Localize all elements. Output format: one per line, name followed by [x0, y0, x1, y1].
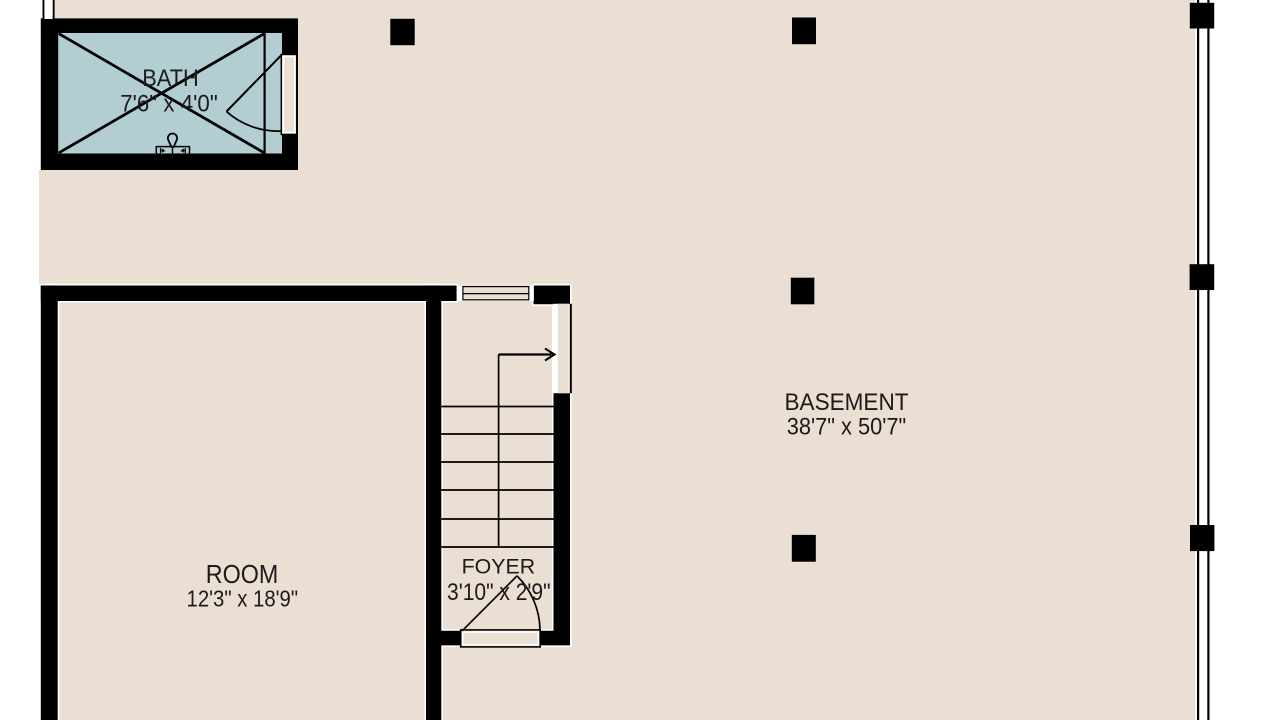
svg-text:38'7" x 50'7": 38'7" x 50'7" [787, 414, 907, 441]
svg-text:3'10" x 2'9": 3'10" x 2'9" [447, 579, 551, 606]
svg-text:7'6" x 4'0": 7'6" x 4'0" [120, 90, 218, 117]
svg-text:BATH: BATH [142, 65, 199, 92]
svg-text:BASEMENT: BASEMENT [785, 389, 909, 416]
svg-text:ROOM: ROOM [206, 561, 279, 589]
svg-text:12'3" x 18'9": 12'3" x 18'9" [187, 586, 299, 612]
svg-text:FOYER: FOYER [462, 555, 536, 578]
